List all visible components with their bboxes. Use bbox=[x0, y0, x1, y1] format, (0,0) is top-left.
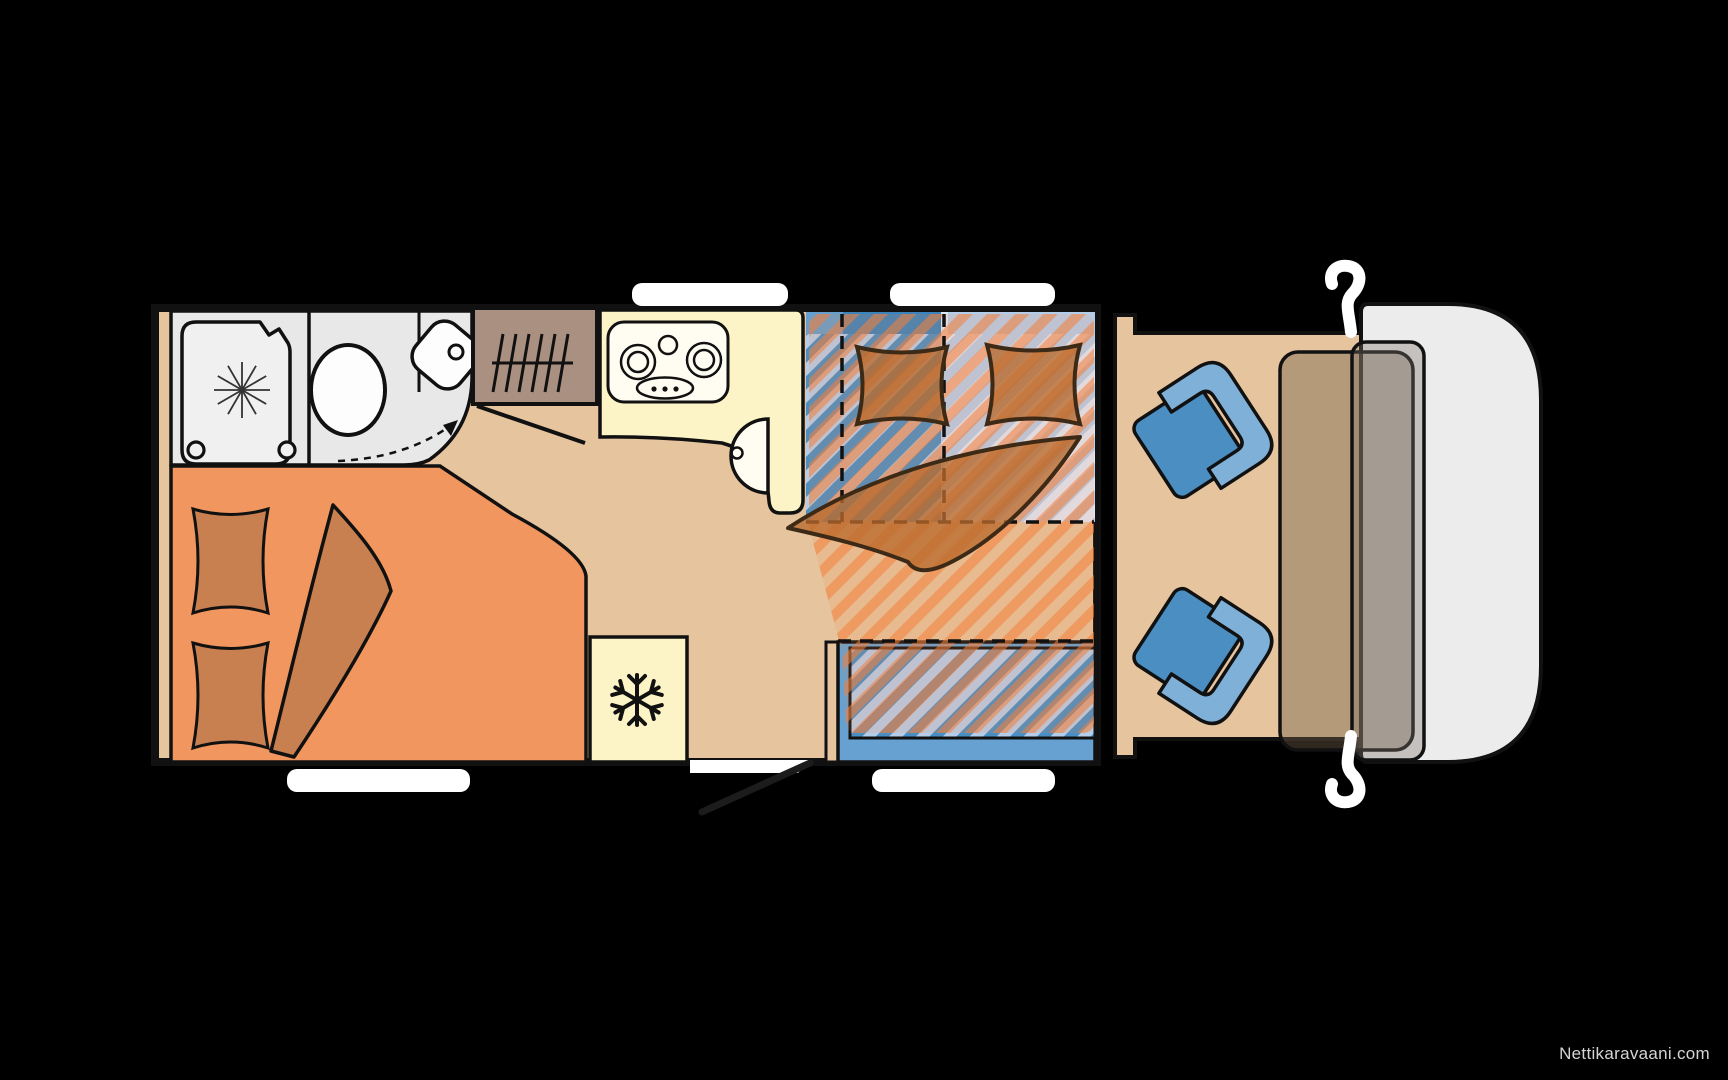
bathroom bbox=[171, 311, 487, 465]
entry-door bbox=[690, 760, 812, 812]
watermark-text: Nettikaravaani.com bbox=[1559, 1044, 1710, 1064]
side-mirror-top-icon bbox=[1331, 266, 1360, 332]
pillow bbox=[987, 345, 1080, 424]
shower-knob-right bbox=[279, 442, 295, 458]
bench-divider bbox=[826, 642, 838, 762]
refrigerator bbox=[590, 637, 687, 762]
windshield bbox=[1352, 342, 1424, 760]
pillow bbox=[193, 643, 268, 748]
window-bar bbox=[872, 769, 1055, 792]
toilet-icon bbox=[311, 345, 385, 435]
window-bar bbox=[890, 283, 1055, 306]
shower-knob-left bbox=[188, 442, 204, 458]
stove-icon bbox=[608, 322, 728, 402]
window-bar bbox=[632, 283, 788, 306]
window-bar bbox=[287, 769, 470, 792]
pillow bbox=[193, 509, 268, 613]
floorplan-canvas bbox=[0, 0, 1728, 1080]
pillow bbox=[857, 347, 947, 424]
